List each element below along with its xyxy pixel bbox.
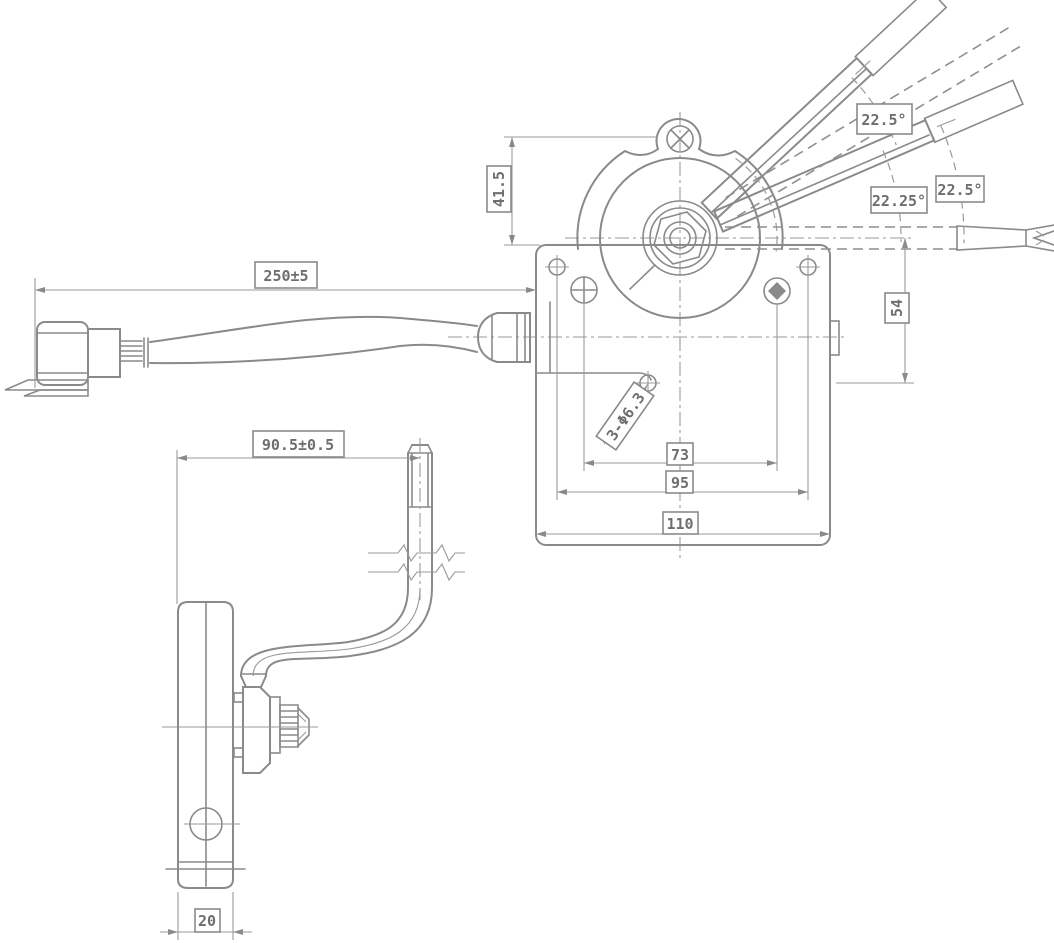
bracket-view: 90.5±0.5 20 bbox=[160, 431, 465, 940]
callout-mount-holes: 3-Φ6.3 bbox=[596, 382, 654, 450]
crank-rod bbox=[241, 438, 465, 687]
dim-bar-width: 20 bbox=[160, 892, 252, 940]
dim-cable-length: 250±5 bbox=[35, 262, 536, 388]
break-symbol-lower bbox=[368, 564, 465, 580]
dim-hole-spacing: 95 bbox=[557, 471, 808, 495]
break-symbol-upper bbox=[368, 545, 465, 561]
angle-top-text: 22.5° bbox=[861, 111, 906, 129]
angle-label-top: 22.5° bbox=[857, 104, 912, 134]
dim-plate-width: 110 bbox=[536, 512, 830, 537]
cable-bottom-edge bbox=[150, 345, 477, 363]
angle-label-right: 22.5° bbox=[936, 176, 984, 202]
control-head-view: 22.5° 22.25° 22.5° 41.5 54 bbox=[448, 0, 1054, 560]
lever-lower-grip bbox=[925, 80, 1023, 142]
phillips-screw bbox=[571, 277, 597, 303]
splined-shaft bbox=[162, 687, 318, 773]
lever-lower bbox=[714, 80, 1023, 231]
hole-spacing-text: 95 bbox=[671, 474, 689, 492]
plate-inner-edge bbox=[536, 373, 651, 380]
hole-drop-text: 54 bbox=[888, 299, 906, 317]
technical-drawing-page: 22.5° 22.25° 22.5° 41.5 54 bbox=[0, 0, 1054, 943]
rod-bend-inner bbox=[241, 588, 408, 676]
bar-width-text: 20 bbox=[198, 912, 216, 930]
diamond-screw bbox=[764, 278, 790, 304]
bracket-offset-text: 90.5±0.5 bbox=[262, 436, 334, 454]
output-rod bbox=[957, 225, 1054, 251]
cable-length-text: 250±5 bbox=[263, 267, 308, 285]
lever-upper-grip bbox=[855, 0, 946, 76]
screw-spacing-text: 73 bbox=[671, 446, 689, 464]
ear-height-text: 41.5 bbox=[490, 171, 508, 207]
corner-hole-right bbox=[796, 255, 820, 279]
plate-side-tab bbox=[830, 321, 839, 355]
dim-bracket-offset: 90.5±0.5 bbox=[177, 431, 420, 604]
cable-top-edge bbox=[150, 317, 477, 342]
angle-mid-text: 22.25° bbox=[872, 192, 926, 210]
cable-end-fitting bbox=[5, 322, 148, 396]
mounting-bar bbox=[166, 602, 245, 888]
dim-hole-drop: 54 bbox=[836, 238, 914, 383]
engineering-drawing: 22.5° 22.25° 22.5° 41.5 54 bbox=[0, 0, 1054, 943]
control-cable-assembly: 250±5 bbox=[5, 262, 536, 396]
angle-label-mid: 22.25° bbox=[871, 187, 927, 213]
plate-width-text: 110 bbox=[666, 515, 693, 533]
corner-hole-left bbox=[545, 255, 569, 279]
angle-right-text: 22.5° bbox=[937, 181, 982, 199]
rod-bend-centerline bbox=[253, 588, 420, 676]
radial-ext-lower bbox=[937, 119, 955, 126]
